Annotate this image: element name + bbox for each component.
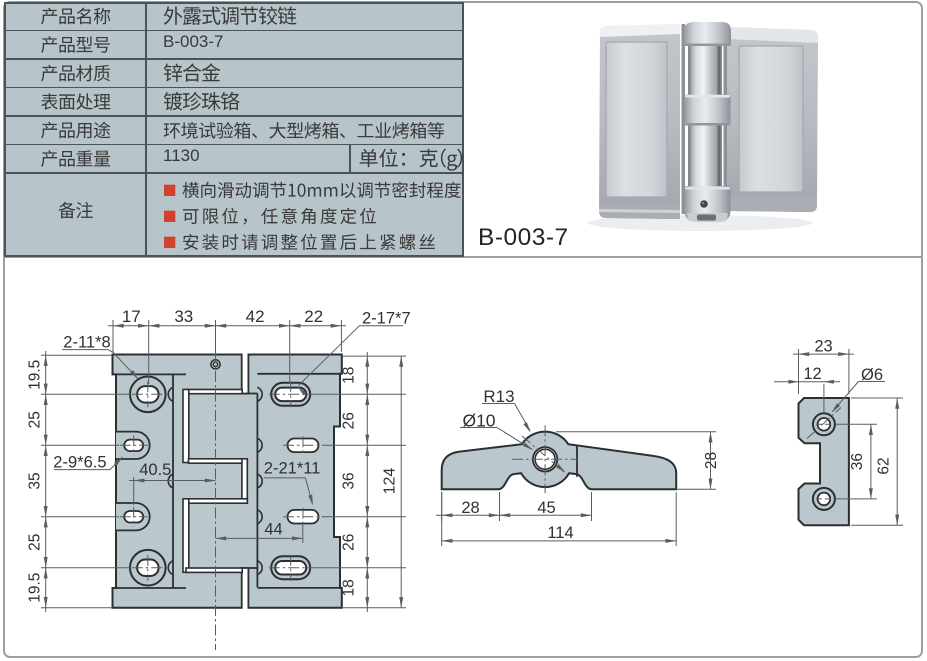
svg-text:25: 25 [27,534,44,551]
svg-text:40.5: 40.5 [139,461,171,479]
svg-text:18: 18 [341,367,358,384]
svg-text:12: 12 [803,365,821,383]
svg-text:28: 28 [461,499,479,517]
svg-text:36: 36 [341,472,358,489]
svg-text:17: 17 [122,307,141,326]
svg-text:35: 35 [27,472,44,489]
svg-text:124: 124 [382,468,399,495]
svg-text:19.5: 19.5 [27,573,44,603]
svg-text:42: 42 [246,307,265,326]
svg-text:2-21*11: 2-21*11 [264,459,321,477]
svg-text:26: 26 [341,534,358,551]
svg-text:114: 114 [547,524,573,542]
svg-text:18: 18 [341,579,358,596]
svg-text:36: 36 [849,453,866,470]
svg-text:44: 44 [264,520,282,538]
svg-text:2-9*6.5: 2-9*6.5 [53,453,106,471]
svg-text:2-17*7: 2-17*7 [362,310,411,328]
svg-text:45: 45 [537,499,555,517]
svg-text:25: 25 [27,411,44,428]
svg-text:23: 23 [814,338,832,356]
svg-text:28: 28 [703,452,720,469]
svg-text:62: 62 [876,457,893,474]
svg-text:19.5: 19.5 [27,360,44,390]
svg-text:2-11*8: 2-11*8 [63,333,110,351]
svg-text:22: 22 [304,307,323,326]
svg-text:33: 33 [174,307,193,326]
svg-text:26: 26 [341,412,358,429]
